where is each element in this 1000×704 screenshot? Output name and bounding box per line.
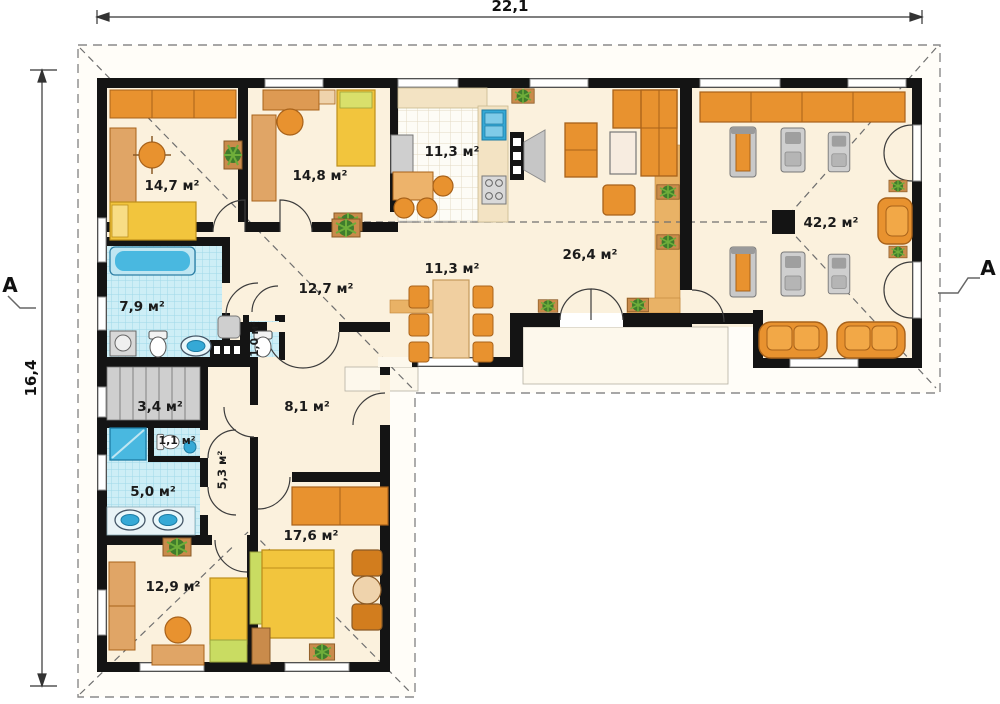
furniture-dining (409, 280, 493, 362)
shelf-squares (214, 346, 240, 354)
chimney (772, 210, 795, 234)
section-letter-left: A (2, 273, 18, 297)
section-letter-right: A (980, 256, 996, 280)
room-label-living-room: 26,4 м² (563, 247, 618, 263)
room-label-bedroom-top-mid: 14,8 м² (293, 168, 348, 184)
dimension-height-label: 16,4 (22, 359, 40, 396)
corridor-plant (332, 219, 360, 237)
room-label-wc-small: 1,0 м² (249, 321, 261, 357)
dimension-width-label: 22,1 (491, 0, 528, 15)
floor-plan-page: 22,1 16,4 A A 14,7 м² 14,8 м² 11,3 м² 12… (0, 0, 1000, 704)
dimension-top: 22,1 (97, 0, 922, 24)
room-label-corridor: 12,7 м² (299, 281, 354, 297)
room-label-wc: 1,1 м² (158, 434, 195, 447)
terrace (523, 327, 728, 384)
room-label-bedroom-top-left: 14,7 м² (145, 178, 200, 194)
section-marker-right: A (938, 256, 996, 293)
room-label-dining: 11,3 м² (425, 261, 480, 277)
room-label-kitchen: 11,3 м² (425, 144, 480, 160)
room-label-vestibule: 8,1 м² (284, 399, 330, 415)
room-label-family-gym-room: 42,2 м² (804, 215, 859, 231)
room-label-stairs: 3,4 м² (137, 399, 183, 415)
floor-plan-drawing: 22,1 16,4 A A 14,7 м² 14,8 м² 11,3 м² 12… (0, 0, 1000, 704)
room-label-bathroom: 7,9 м² (119, 299, 165, 315)
room-label-hallway: 5,3 м² (215, 451, 229, 490)
section-marker-left: A (2, 273, 36, 308)
room-label-bedroom-bottom-left: 12,9 м² (146, 579, 201, 595)
dimension-left: 16,4 (22, 70, 57, 686)
room-label-bedroom-bottom: 17,6 м² (284, 528, 339, 544)
room-label-shower-room: 5,0 м² (130, 484, 176, 500)
